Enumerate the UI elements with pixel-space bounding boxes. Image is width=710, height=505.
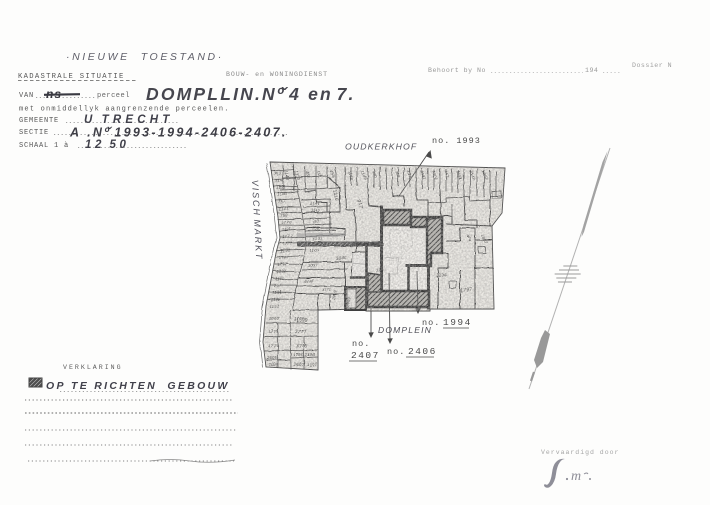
svg-text:VAN: VAN <box>19 92 34 100</box>
svg-text:no.: no. <box>352 339 370 349</box>
svg-text:perceel: perceel <box>97 92 130 100</box>
svg-text:BOUW- en WONINGDIENST: BOUW- en WONINGDIENST <box>226 71 328 78</box>
svg-text:OP TE RICHTEN GEBOUW: OP TE RICHTEN GEBOUW <box>46 380 230 392</box>
svg-text:GEMEENTE: GEMEENTE <box>19 117 59 125</box>
svg-text:OUDKERKHOF: OUDKERKHOF <box>345 142 417 152</box>
svg-text:m: m <box>571 469 581 484</box>
svg-text:Vervaardigd door: Vervaardigd door <box>541 449 619 456</box>
svg-text:2406: 2406 <box>408 346 437 357</box>
svg-text:A .Nº̌ 1993-1994-2406-2407.: A .Nº̌ 1993-1994-2406-2407. <box>69 126 288 140</box>
svg-text:U TRECHT: U TRECHT <box>84 114 174 126</box>
svg-text:DOMPLLIN.Nº̌ 4 en 7.: DOMPLLIN.Nº̌ 4 en 7. <box>146 84 356 104</box>
svg-text:194: 194 <box>585 67 598 74</box>
svg-text:no.: no. <box>387 347 405 357</box>
svg-text:Dossier N: Dossier N <box>632 62 672 69</box>
svg-text:SCHAAL 1 à: SCHAAL 1 à <box>19 142 69 150</box>
svg-text:1994: 1994 <box>443 317 472 328</box>
svg-text:VERKLARING: VERKLARING <box>63 364 123 371</box>
svg-text:met onmiddellyk aangrenzende p: met onmiddellyk aangrenzende perceelen. <box>19 106 230 114</box>
svg-text:no.: no. <box>422 318 440 328</box>
svg-text:·NIEUWE TOESTAND·: ·NIEUWE TOESTAND· <box>66 51 224 63</box>
svg-text:2407: 2407 <box>351 350 380 361</box>
svg-text:SECTIE: SECTIE <box>19 129 49 137</box>
svg-text:Behoort by No: Behoort by No <box>428 67 486 74</box>
svg-text:12 50: 12 50 <box>85 139 130 151</box>
svg-text:KADASTRALE SITUATIE: KADASTRALE SITUATIE <box>18 73 125 81</box>
svg-text:no. 1993: no. 1993 <box>432 136 481 146</box>
